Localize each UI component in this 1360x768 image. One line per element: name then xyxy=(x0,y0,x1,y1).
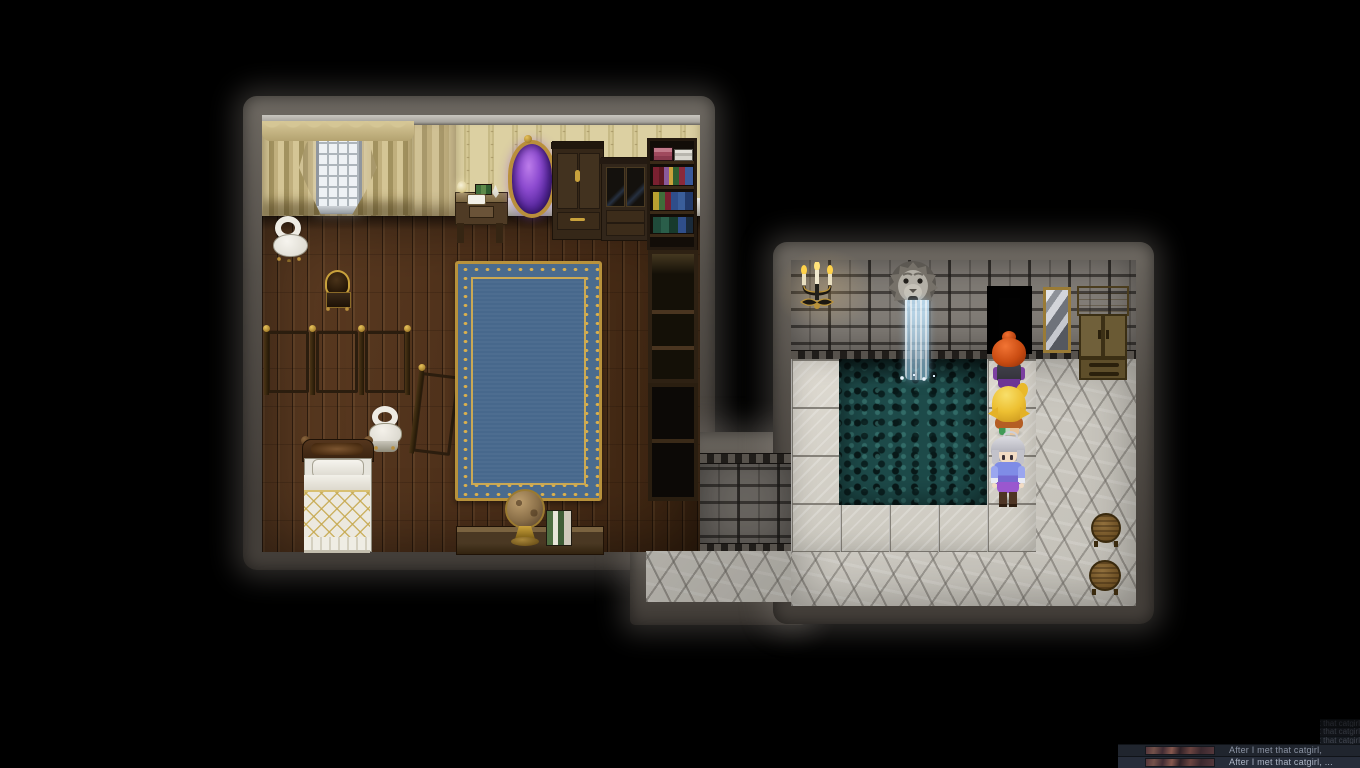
storage-shelf-upper xyxy=(648,250,698,383)
folding-screen-three-panel xyxy=(264,327,410,395)
screen-panel-3 xyxy=(365,331,407,393)
char3-eye-right xyxy=(1010,455,1013,460)
shelf-board-3 xyxy=(650,211,694,214)
log-entry-clipped[interactable]: After I met that catgirl, xyxy=(1320,736,1360,744)
bed-fringe xyxy=(304,537,370,553)
blue-rug xyxy=(455,261,602,501)
shelf-upper-glow xyxy=(652,254,694,274)
storage-shelf-lower xyxy=(648,383,698,501)
wardrobe-drawer-slot-1 xyxy=(1089,363,1119,367)
desk-leg-left xyxy=(457,223,464,243)
shelf-board-1 xyxy=(650,161,694,164)
log-entry[interactable]: After I met that catgirl, ... xyxy=(1118,756,1360,768)
char3-hand-right xyxy=(1019,483,1024,488)
screen-finial-3 xyxy=(358,325,365,332)
arcane-mirror-crown xyxy=(524,135,532,143)
corridor-floor[interactable] xyxy=(646,551,793,602)
game-screen[interactable]: After I met that catgirl,After I met tha… xyxy=(0,0,1360,768)
books-top-stack-white xyxy=(674,149,693,161)
cabinet-door-right xyxy=(579,153,600,209)
wardrobe-drawers xyxy=(1079,358,1127,380)
shelf-board-4 xyxy=(650,234,694,237)
char1-hair xyxy=(992,338,1026,367)
screen-post-2 xyxy=(310,329,315,395)
display-cabinet xyxy=(601,157,650,241)
desk-lamp xyxy=(457,181,467,193)
window xyxy=(316,130,362,214)
globe-sphere xyxy=(505,489,545,529)
curtain-swag xyxy=(262,121,414,141)
chair-legs xyxy=(275,253,303,262)
bed xyxy=(302,436,372,553)
books-row-2 xyxy=(652,166,694,186)
headboard-carving xyxy=(311,443,363,455)
display-glass-left xyxy=(606,167,625,207)
rug-field xyxy=(471,277,586,485)
bookshelf xyxy=(647,138,697,250)
arcane-mirror xyxy=(508,140,556,218)
screen-finial-4 xyxy=(404,325,411,332)
bath-stool-1-legs xyxy=(1094,541,1118,547)
log-entry-clipped[interactable]: After I met that catgirl, xyxy=(1320,727,1360,735)
dark-stool-chair xyxy=(324,270,351,313)
log-entry-thumbnail xyxy=(1145,758,1215,767)
screen-post-4 xyxy=(405,329,410,395)
char3-boot-right xyxy=(1009,492,1017,507)
shelf-upper-board-1 xyxy=(652,310,694,314)
candelabra-icon xyxy=(795,262,839,312)
bath-stool-1 xyxy=(1091,513,1121,543)
books-top-stack-pink xyxy=(653,147,673,161)
screen-finial-2 xyxy=(309,325,316,332)
cabinet-drawer-handle xyxy=(570,218,585,221)
commode-base xyxy=(372,441,398,452)
display-glass-right xyxy=(626,167,645,207)
corridor-brick-wall xyxy=(700,453,791,552)
books-row-3 xyxy=(652,191,694,211)
char3-boot-left xyxy=(999,492,1007,507)
bath-stool-2 xyxy=(1089,560,1121,591)
char3-shadow xyxy=(993,496,1023,506)
single-screen-finial xyxy=(418,364,426,372)
cabinet-handles xyxy=(575,170,580,182)
screen-finial-1 xyxy=(263,325,270,332)
cabinet-cornice xyxy=(551,142,603,149)
shelf-board-2 xyxy=(650,186,694,189)
screen-post-3 xyxy=(359,329,364,395)
waterfall xyxy=(905,300,929,380)
screen-panel-2 xyxy=(316,331,358,393)
open-book xyxy=(467,194,486,205)
log-entry-text: After I met that catgirl, xyxy=(1229,744,1322,756)
shelf-upper-board-2 xyxy=(652,346,694,350)
wardrobe-handle-right xyxy=(1106,330,1109,339)
waterfall-splash xyxy=(894,370,942,384)
wardrobe-upper-panel xyxy=(1077,286,1129,316)
shelf-lower-board xyxy=(652,439,694,443)
desk-drawer xyxy=(469,206,494,218)
globe xyxy=(503,489,547,549)
cabinet-drawer xyxy=(557,212,600,230)
bath-stool-2-legs xyxy=(1092,589,1118,595)
screen-panel-1 xyxy=(267,331,309,393)
display-cornice xyxy=(600,158,649,164)
log-entry-clipped[interactable]: After I met that catgirl, xyxy=(1320,719,1360,727)
log-entry-text: After I met that catgirl, ... xyxy=(1229,756,1333,768)
bath-mirror xyxy=(1043,287,1071,353)
wardrobe-doors xyxy=(1079,314,1127,358)
vanity-chair xyxy=(271,216,309,264)
display-drawer-2 xyxy=(606,223,645,236)
stool-feet xyxy=(325,306,350,312)
desk-leg-right xyxy=(496,223,503,243)
screen-post-1 xyxy=(264,329,269,395)
bed-blanket xyxy=(304,490,370,539)
log-entry-thumbnail xyxy=(1145,746,1215,755)
sideboard-books xyxy=(546,510,572,546)
wardrobe xyxy=(1077,286,1129,384)
tall-cabinet xyxy=(552,141,604,240)
wardrobe-drawer-slot-2 xyxy=(1089,372,1119,376)
globe-base xyxy=(511,537,539,546)
books-row-4 xyxy=(652,216,694,234)
log-entry[interactable]: After I met that catgirl, xyxy=(1118,744,1360,756)
char3-eye-left xyxy=(1002,455,1005,460)
wardrobe-handle-left xyxy=(1098,330,1101,339)
message-log-overlay[interactable]: After I met that catgirl,After I met tha… xyxy=(1118,719,1360,768)
corridor-stud-top xyxy=(700,453,791,464)
character-silver-hair[interactable] xyxy=(988,432,1028,506)
display-drawer-1 xyxy=(606,210,645,223)
writing-desk xyxy=(455,181,506,243)
